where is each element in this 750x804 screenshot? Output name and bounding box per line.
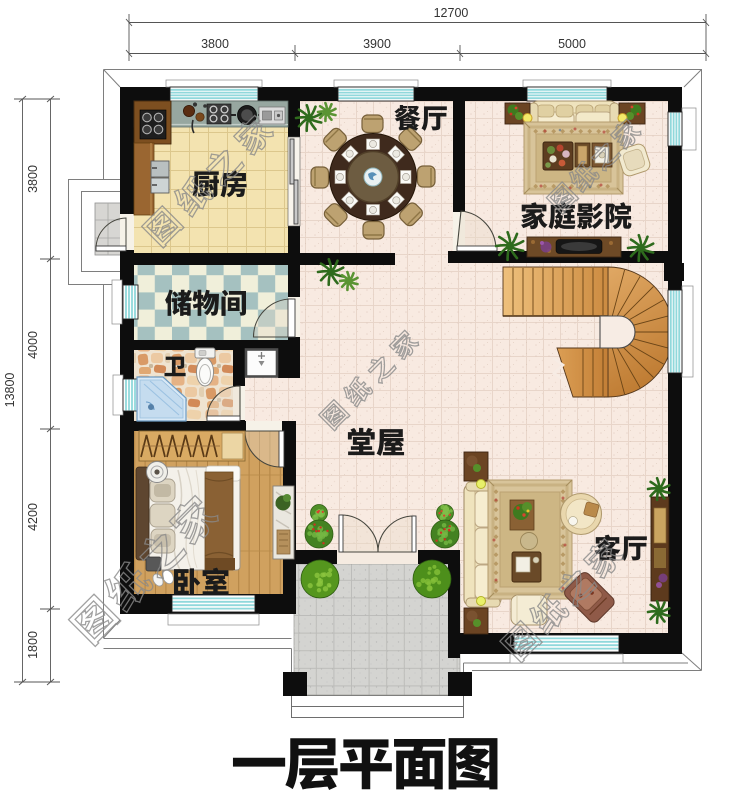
svg-text:3900: 3900 xyxy=(363,37,391,51)
svg-text:13800: 13800 xyxy=(3,373,17,408)
svg-text:1800: 1800 xyxy=(26,631,40,659)
svg-text:3800: 3800 xyxy=(26,165,40,193)
svg-text:3800: 3800 xyxy=(201,37,229,51)
svg-text:5000: 5000 xyxy=(558,37,586,51)
svg-text:12700: 12700 xyxy=(434,6,469,20)
svg-text:4000: 4000 xyxy=(26,331,40,359)
svg-text:4200: 4200 xyxy=(26,503,40,531)
